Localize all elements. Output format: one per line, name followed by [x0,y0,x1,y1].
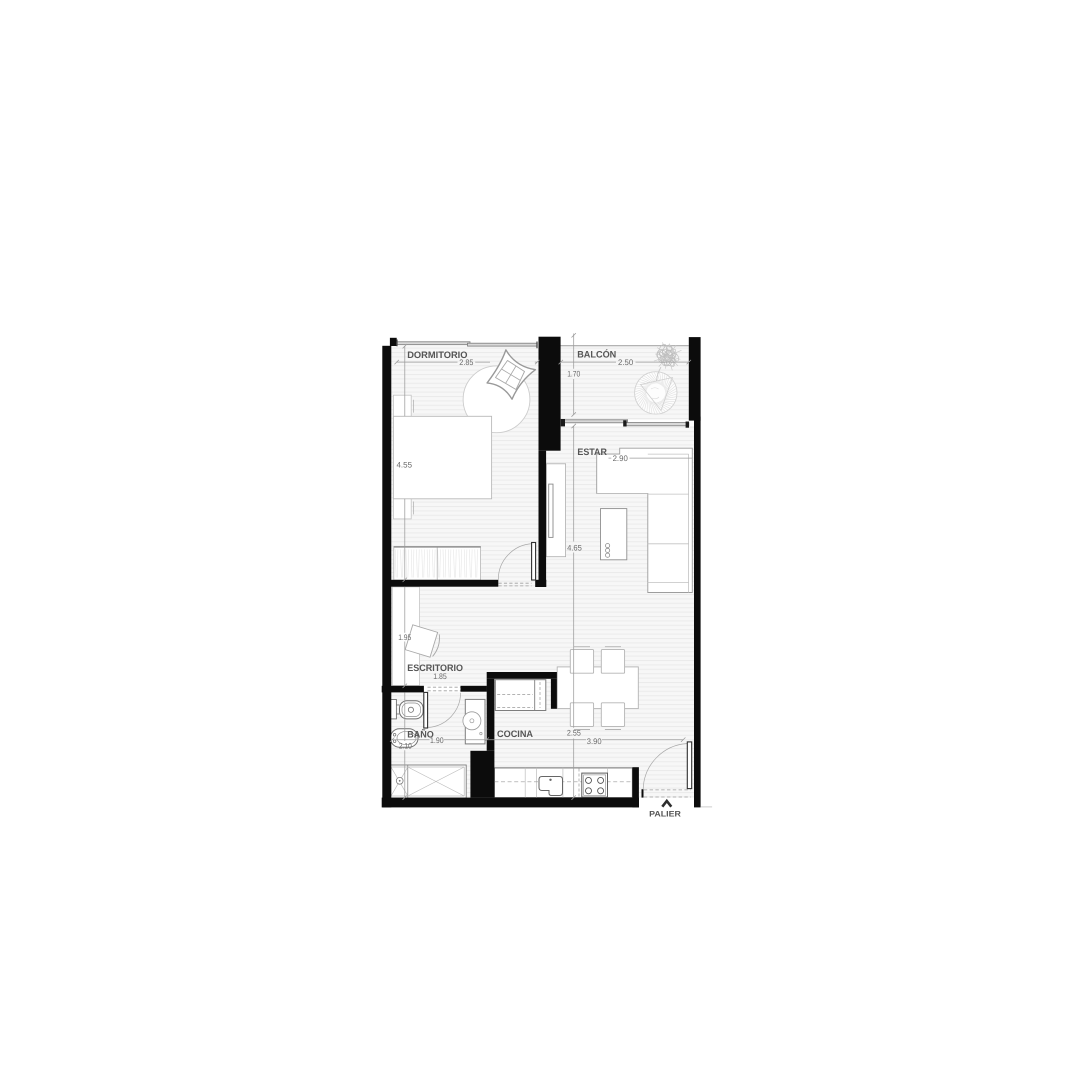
svg-text:2.85: 2.85 [459,358,474,367]
svg-text:2.90: 2.90 [613,454,629,463]
svg-text:PALIER: PALIER [649,809,681,818]
svg-text:1.90: 1.90 [430,736,444,745]
svg-text:2.50: 2.50 [618,358,634,367]
svg-text:3.90: 3.90 [587,737,602,746]
svg-text:COCINA: COCINA [497,728,533,739]
svg-text:4.65: 4.65 [567,543,582,552]
svg-text:2.55: 2.55 [567,729,581,738]
svg-text:1.70: 1.70 [567,370,581,379]
svg-text:1.85: 1.85 [433,672,447,681]
svg-text:ESTAR: ESTAR [577,446,607,457]
svg-text:4.55: 4.55 [397,460,413,469]
svg-text:BALCÓN: BALCÓN [577,348,616,359]
svg-text:1.95: 1.95 [398,633,412,642]
svg-text:2.10: 2.10 [399,742,412,751]
